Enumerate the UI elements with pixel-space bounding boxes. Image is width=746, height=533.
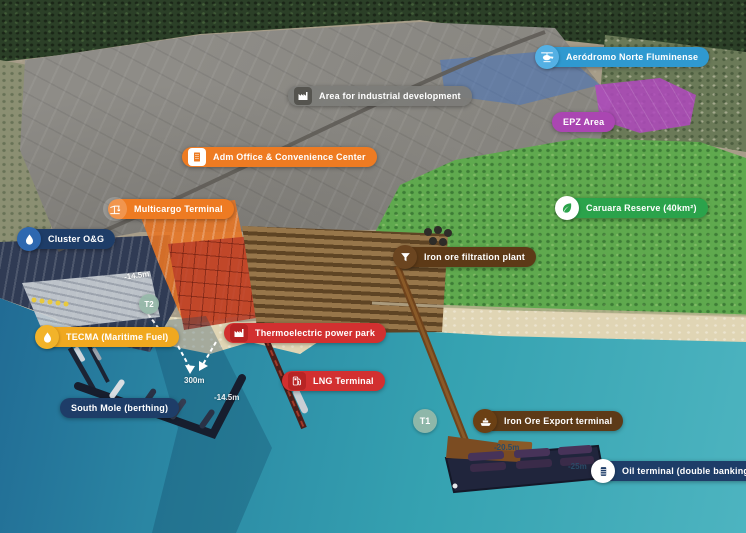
fuel-tank-row [32,298,69,307]
depth-channel-width: 300m [184,376,204,385]
label-iron-filtration-text: Iron ore filtration plant [424,252,525,262]
label-epz-text: EPZ Area [563,117,604,127]
depth-iron-ore-berth: -20.5m [494,443,519,452]
power-plant-icon [230,324,248,342]
label-oil-terminal-text: Oil terminal (double banking) [622,466,746,476]
map-structures [0,0,746,533]
crane-icon [103,197,127,221]
label-thermoelectric: Thermoelectric power park [224,323,386,343]
label-multicargo-text: Multicargo Terminal [134,204,223,214]
factory-icon [294,87,312,105]
label-multicargo: Multicargo Terminal [108,199,234,219]
label-adm-office-text: Adm Office & Convenience Center [213,152,366,162]
label-thermoelectric-text: Thermoelectric power park [255,328,375,338]
funnel-icon [393,245,417,269]
helicopter-icon [535,45,559,69]
label-industrial-area-text: Area for industrial development [319,91,461,101]
label-iron-ore-export: Iron Ore Export terminal [478,411,623,431]
tank-farm [424,226,452,246]
oil-drop-icon [17,227,41,251]
label-oil-terminal: Oil terminal (double banking) [596,461,746,481]
fuel-drop-icon [35,325,59,349]
label-lng: LNG Terminal [282,371,385,391]
dredged-channel [148,316,272,533]
label-cluster-og-text: Cluster O&G [48,234,104,244]
label-lng-text: LNG Terminal [313,376,374,386]
label-tecma-text: TECMA (Maritime Fuel) [66,332,168,342]
label-iron-ore-export-text: Iron Ore Export terminal [504,416,612,426]
label-industrial-area: Area for industrial development [288,86,472,106]
depth-outer-channel: -14.5m [214,393,239,402]
label-aerodrome: Aeródromo Norte Fluminense [540,47,709,67]
label-caruara: Caruara Reserve (40km²) [560,198,708,218]
office-building-icon [188,148,206,166]
label-caruara-text: Caruara Reserve (40km²) [586,203,697,213]
label-adm-office: Adm Office & Convenience Center [182,147,377,167]
label-iron-filtration: Iron ore filtration plant [398,247,536,267]
label-aerodrome-text: Aeródromo Norte Fluminense [566,52,698,62]
marker-t1: T1 [413,409,437,433]
marker-t2: T2 [139,294,159,314]
leaf-icon [555,196,579,220]
oil-barrel-icon [591,459,615,483]
label-epz: EPZ Area [552,112,615,132]
label-south-mole-text: South Mole (berthing) [71,403,168,413]
depth-oil-berth: -25m [568,462,587,471]
label-tecma: TECMA (Maritime Fuel) [40,327,179,347]
lng-pump-icon [288,372,306,390]
aerial-map-canvas: Aeródromo Norte Fluminense Area for indu… [0,0,746,533]
coast-road [372,303,746,316]
ship-icon [473,409,497,433]
label-cluster-og: Cluster O&G [22,229,115,249]
label-south-mole: South Mole (berthing) [60,398,179,418]
